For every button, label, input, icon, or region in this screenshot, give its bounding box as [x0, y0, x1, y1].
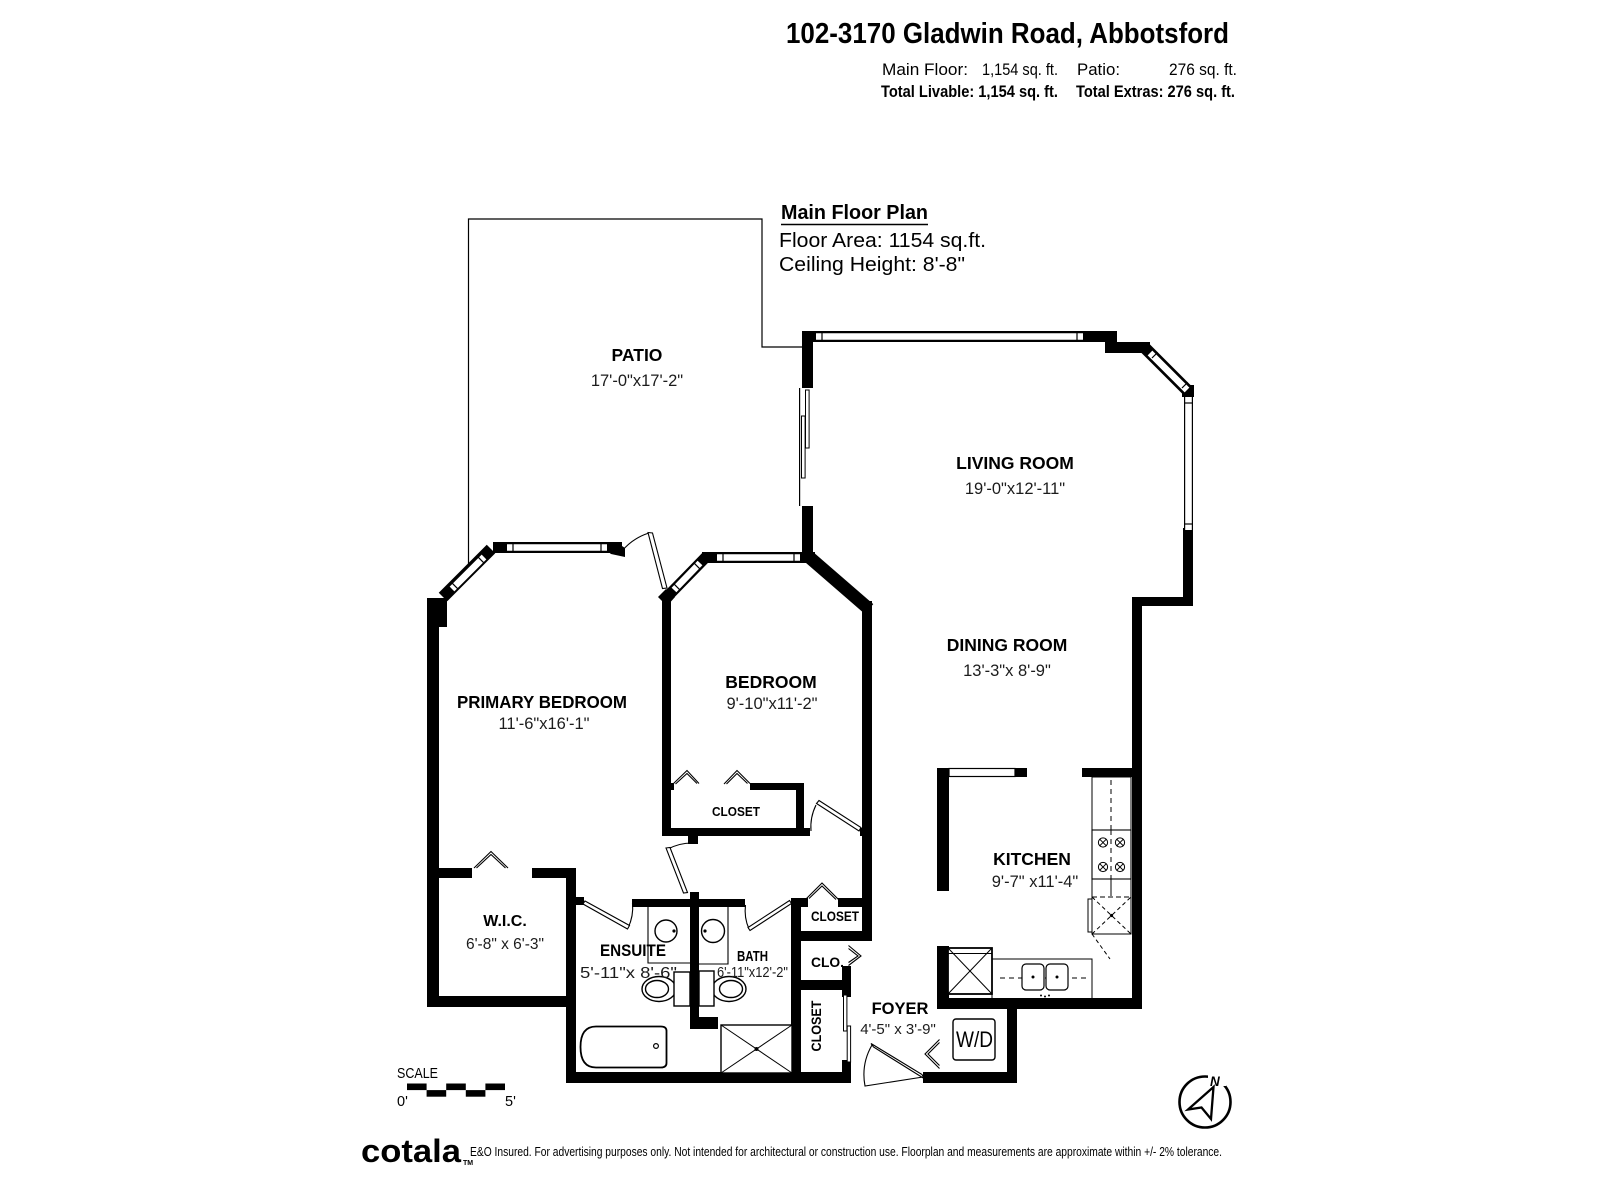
- svg-text:LIVING ROOM: LIVING ROOM: [956, 453, 1074, 473]
- svg-text:PATIO: PATIO: [612, 345, 663, 365]
- svg-text:E&O Insured. For advertising p: E&O Insured. For advertising purposes on…: [470, 1145, 1222, 1159]
- svg-text:BATH: BATH: [737, 948, 768, 965]
- svg-text:cotala: cotala: [361, 1133, 461, 1169]
- svg-text:DINING ROOM: DINING ROOM: [947, 635, 1068, 655]
- svg-text:0': 0': [397, 1094, 408, 1110]
- svg-text:13'-3"x 8'-9": 13'-3"x 8'-9": [963, 662, 1051, 680]
- svg-text:FOYER: FOYER: [872, 1000, 929, 1018]
- svg-text:SCALE: SCALE: [397, 1066, 438, 1082]
- svg-text:Ceiling Height: 8'-8": Ceiling Height: 8'-8": [779, 254, 965, 276]
- svg-text:W.I.C.: W.I.C.: [483, 913, 527, 930]
- svg-text:Floor Area: 1154 sq.ft.: Floor Area: 1154 sq.ft.: [779, 230, 986, 252]
- svg-text:9'-10"x11'-2": 9'-10"x11'-2": [726, 695, 817, 713]
- svg-text:Total Livable: 1,154 sq. ft.: Total Livable: 1,154 sq. ft.: [881, 82, 1058, 101]
- svg-text:5'-11"x 8'-6": 5'-11"x 8'-6": [580, 965, 677, 982]
- svg-text:Main Floor Plan: Main Floor Plan: [781, 202, 928, 224]
- svg-text:CLOSET: CLOSET: [712, 804, 760, 819]
- svg-text:PRIMARY BEDROOM: PRIMARY BEDROOM: [457, 692, 627, 712]
- svg-text:19'-0"x12'-11": 19'-0"x12'-11": [965, 480, 1065, 498]
- svg-text:102-3170 Gladwin Road, Abbotsf: 102-3170 Gladwin Road, Abbotsford: [786, 18, 1229, 50]
- svg-text:Patio:: Patio:: [1077, 60, 1120, 79]
- svg-text:BEDROOM: BEDROOM: [725, 672, 816, 692]
- svg-text:N: N: [1210, 1074, 1220, 1089]
- svg-text:KITCHEN: KITCHEN: [993, 849, 1071, 869]
- svg-text:9'-7" x11'-4": 9'-7" x11'-4": [992, 873, 1079, 891]
- svg-text:Total Extras: 276 sq. ft.: Total Extras: 276 sq. ft.: [1076, 82, 1235, 101]
- svg-text:W/D: W/D: [956, 1027, 993, 1052]
- svg-text:6'-8" x 6'-3": 6'-8" x 6'-3": [466, 936, 544, 953]
- svg-text:1,154 sq. ft.: 1,154 sq. ft.: [982, 60, 1058, 79]
- svg-text:CLO.: CLO.: [811, 955, 844, 970]
- svg-text:17'-0"x17'-2": 17'-0"x17'-2": [591, 372, 683, 390]
- svg-text:CLOSET: CLOSET: [809, 1000, 824, 1052]
- svg-text:4'-5" x 3'-9": 4'-5" x 3'-9": [860, 1021, 936, 1038]
- svg-text:CLOSET: CLOSET: [811, 909, 860, 924]
- svg-text:ENSUITE: ENSUITE: [600, 941, 666, 960]
- svg-text:TM: TM: [463, 1160, 473, 1167]
- svg-text:11'-6"x16'-1": 11'-6"x16'-1": [498, 715, 589, 733]
- svg-text:Main Floor:: Main Floor:: [882, 60, 968, 79]
- svg-text:276 sq. ft.: 276 sq. ft.: [1169, 60, 1237, 79]
- svg-text:6'-11"x12'-2": 6'-11"x12'-2": [717, 965, 788, 981]
- svg-text:5': 5': [505, 1094, 516, 1110]
